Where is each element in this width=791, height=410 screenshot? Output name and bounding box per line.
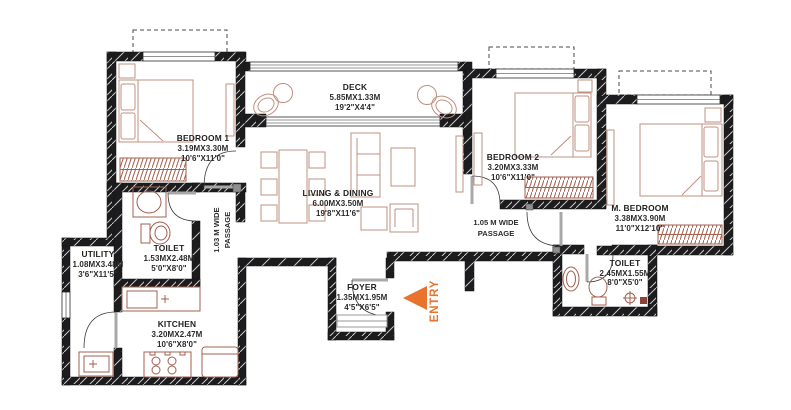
wc-tank (141, 224, 150, 243)
label-foyer-metric: 1.35MX1.95M (337, 293, 388, 302)
shelf (226, 84, 234, 136)
tv-console (456, 136, 463, 192)
label-utility-metric: 1.08MX3.48M (73, 260, 124, 269)
dining-chair (261, 179, 277, 195)
bedside-table (578, 80, 592, 92)
wall-segment (440, 114, 464, 127)
floor-plan-svg: BEDROOM 1 3.19MX3.30M 10'6"X11'0" DECK 5… (0, 0, 791, 410)
wall-segment (238, 258, 336, 266)
wall-segment (62, 377, 246, 385)
wall-segment (465, 261, 474, 291)
wall-segment (458, 62, 465, 71)
fixtures-utility (79, 352, 113, 376)
dining-chair (261, 152, 277, 168)
label-kitchen-name: KITCHEN (158, 319, 197, 329)
label-toilet1-imperial: 5'0"X8'0" (151, 264, 187, 273)
label-bedroom2-name: BEDROOM 2 (487, 152, 540, 162)
label-deck-imperial: 19'2"X4'4" (335, 103, 375, 112)
label-toilet2-imperial: 8'0"X5'0" (607, 278, 643, 287)
wall-segment (114, 279, 200, 287)
projection-above-master-bedroom (619, 71, 711, 95)
label-kitchen-imperial: 10'6"X8'0" (157, 340, 197, 349)
label-passage2-line2: PASSAGE (478, 229, 515, 238)
label-passage1-line1: 1.03 M WIDE (212, 207, 221, 252)
label-utility-name: UTILITY (81, 249, 114, 259)
label-foyer-name: FOYER (347, 282, 377, 292)
entry-marker: ENTRY (403, 280, 441, 323)
label-utility-imperial: 3'6"X11'5" (78, 270, 118, 279)
wall-segment (466, 69, 496, 78)
wall-segment (328, 258, 336, 340)
label-bedroom1-name: BEDROOM 1 (177, 133, 230, 143)
wall-segment (238, 258, 246, 385)
wall-segment (236, 52, 245, 147)
label-bedroom2-imperial: 10'6"X11'0" (491, 173, 535, 182)
deck-table (274, 84, 293, 103)
wall-segment (236, 192, 245, 222)
kitchen-sink (127, 291, 157, 308)
window-bedroom2 (496, 69, 574, 78)
label-foyer-imperial: 4'5"X6'5" (344, 303, 380, 312)
label-deck-name: DECK (343, 82, 368, 92)
label-passage2-line1: 1.05 M WIDE (473, 218, 518, 227)
door-master-bedroom (526, 204, 561, 253)
bed (640, 124, 722, 196)
bedside-table (705, 108, 721, 122)
wall-segment (597, 69, 606, 208)
side-table (361, 207, 387, 230)
wall-segment (724, 95, 733, 255)
wall-segment (328, 332, 394, 340)
label-bedroom2-metric: 3.20MX3.33M (488, 163, 539, 172)
label-toilet2-metric: 2.45MX1.55M (600, 269, 651, 278)
tap-icon (89, 360, 97, 368)
label-deck-metric: 5.85MX1.33M (330, 93, 381, 102)
entry-label: ENTRY (429, 280, 441, 323)
fixtures-toilet1 (133, 187, 170, 244)
hob (144, 352, 191, 377)
label-master-name: M. BEDROOM (611, 203, 668, 213)
window-master-bedroom (637, 95, 720, 104)
bedside-table (119, 64, 135, 78)
label-bedroom1-metric: 3.19MX3.30M (178, 144, 229, 153)
deck-table (418, 86, 437, 105)
label-master-imperial: 11'0"X12'10" (616, 224, 665, 233)
tap-icon (161, 295, 169, 303)
wall-segment (387, 252, 557, 261)
label-living-name: LIVING & DINING (303, 188, 374, 198)
wall-segment (244, 62, 250, 71)
dining-chair (261, 205, 277, 221)
refrigerator (202, 347, 238, 377)
label-master-metric: 3.38MX3.90M (615, 214, 666, 223)
wall-segment (553, 245, 562, 316)
furniture-living-dining (261, 133, 463, 232)
label-kitchen-metric: 3.20MX2.47M (152, 330, 203, 339)
window-deck-living (266, 117, 440, 126)
window-utility (62, 292, 70, 318)
label-toilet1-name: TOILET (154, 243, 186, 253)
sofa-single (390, 204, 418, 232)
wc-tank (592, 297, 606, 305)
label-living-metric: 6.00MX3.50M (313, 199, 364, 208)
dining-chair (309, 152, 325, 168)
label-passage1-line2: PASSAGE (223, 212, 232, 249)
wall-segment (62, 238, 114, 246)
wall-segment (107, 52, 143, 61)
washbasin (137, 191, 161, 213)
drain (640, 297, 647, 304)
coffee-table (391, 148, 415, 186)
label-living-imperial: 19'8"X11'6" (316, 209, 360, 218)
dining-table (279, 150, 307, 223)
wall-segment (463, 62, 472, 174)
wall-segment (500, 200, 606, 209)
deck-railing (250, 62, 458, 71)
wall-segment (597, 95, 637, 104)
label-toilet2-name: TOILET (610, 258, 642, 268)
wall-segment (62, 318, 70, 385)
entry-arrow-icon (403, 286, 427, 310)
furniture-bedroom1 (119, 64, 234, 181)
wall-segment (192, 183, 200, 192)
projection-above-bedroom2 (489, 47, 574, 69)
door-utility (84, 312, 116, 348)
wall-segment (553, 307, 657, 316)
door-toilet1 (168, 193, 196, 221)
wall-segment (648, 245, 657, 316)
shelf (607, 130, 614, 205)
window-bedroom1 (143, 52, 215, 61)
label-bedroom1-imperial: 10'6"X11'0" (181, 154, 225, 163)
projection-above-bedroom1 (133, 30, 227, 53)
wall-segment (114, 287, 122, 312)
wall-segment (114, 348, 122, 378)
label-toilet1-metric: 1.53MX2.48M (144, 254, 195, 263)
floor-plan: BEDROOM 1 3.19MX3.30M 10'6"X11'0" DECK 5… (0, 0, 791, 410)
